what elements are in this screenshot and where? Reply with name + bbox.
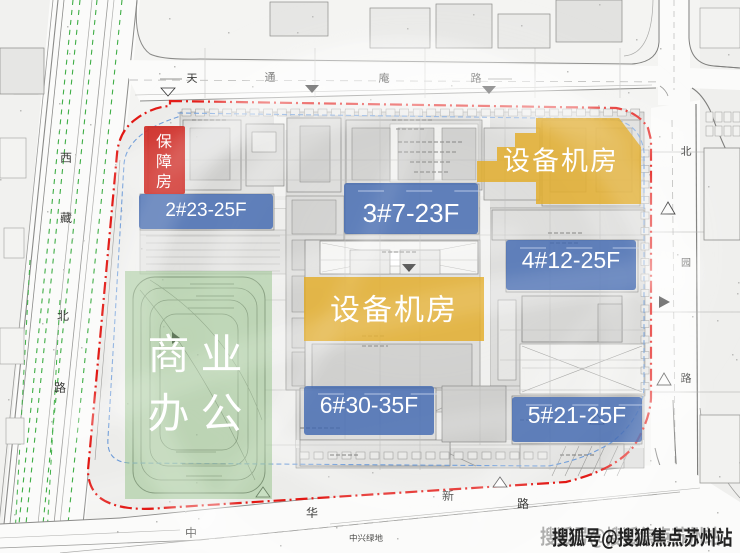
svg-text:6#30-35F: 6#30-35F xyxy=(320,392,418,418)
svg-text:5#21-25F: 5#21-25F xyxy=(528,402,626,428)
